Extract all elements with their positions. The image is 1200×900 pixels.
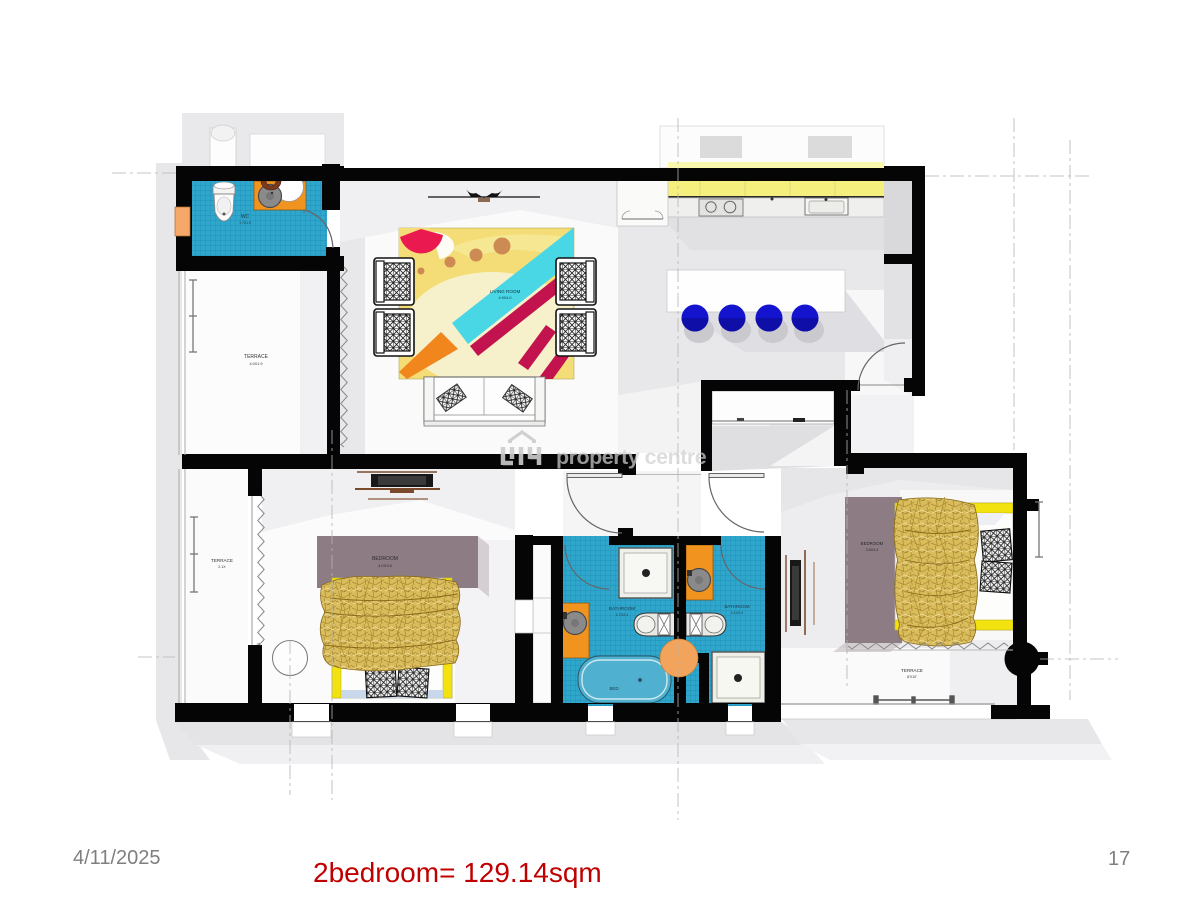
svg-text:4.9X4.0: 4.9X4.0 (498, 296, 511, 300)
svg-text:BEDROOM: BEDROOM (861, 541, 884, 546)
svg-text:LIVING ROOM: LIVING ROOM (490, 289, 521, 294)
svg-text:BATHROOM: BATHROOM (724, 604, 749, 609)
svg-text:property centre: property centre (556, 445, 707, 469)
svg-text:WC: WC (241, 214, 250, 220)
svg-text:1.7X1.5: 1.7X1.5 (239, 221, 251, 225)
svg-text:8'X10': 8'X10' (907, 675, 917, 679)
svg-text:BEDROOM: BEDROOM (372, 556, 398, 562)
svg-text:TERRACE: TERRACE (244, 354, 269, 360)
svg-text:17: 17 (1108, 848, 1130, 870)
svg-text:2.1X: 2.1X (218, 565, 226, 569)
svg-text:TERRACE: TERRACE (901, 668, 923, 673)
svg-text:2.1X2.4: 2.1X2.4 (731, 611, 743, 615)
svg-text:BED: BED (609, 686, 618, 691)
svg-text:4.0X1.9: 4.0X1.9 (249, 362, 262, 366)
svg-text:3.6X3.4: 3.6X3.4 (866, 548, 878, 552)
svg-text:4/11/2025: 4/11/2025 (73, 847, 161, 869)
svg-text:2.7X2.4: 2.7X2.4 (616, 613, 628, 617)
svg-text:TERRACE: TERRACE (211, 558, 233, 563)
svg-text:BATHROOM: BATHROOM (609, 606, 635, 611)
svg-text:2bedroom= 129.14sqm: 2bedroom= 129.14sqm (313, 857, 602, 888)
svg-text:4.0X3.6: 4.0X3.6 (378, 563, 393, 568)
